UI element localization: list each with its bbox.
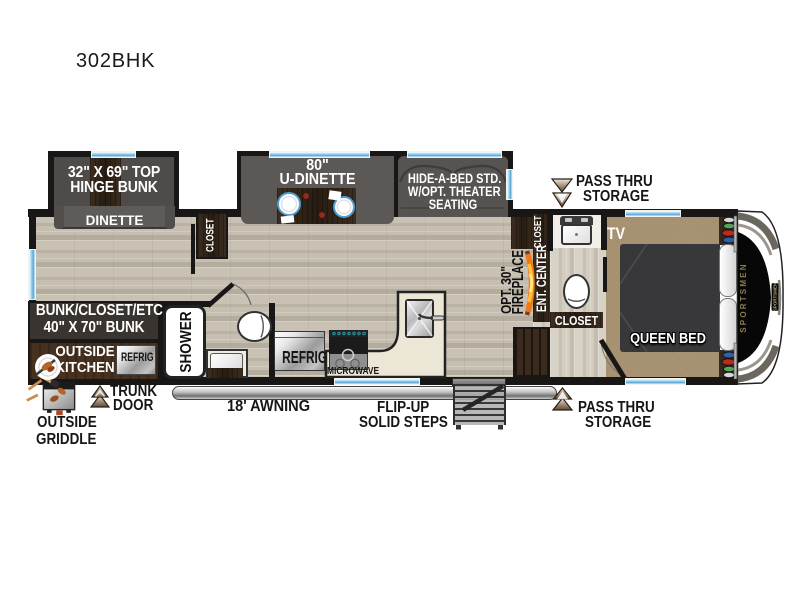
svg-text:SPORTSMEN: SPORTSMEN (739, 262, 748, 332)
svg-text:SPORTSMEN: SPORTSMEN (773, 283, 778, 312)
